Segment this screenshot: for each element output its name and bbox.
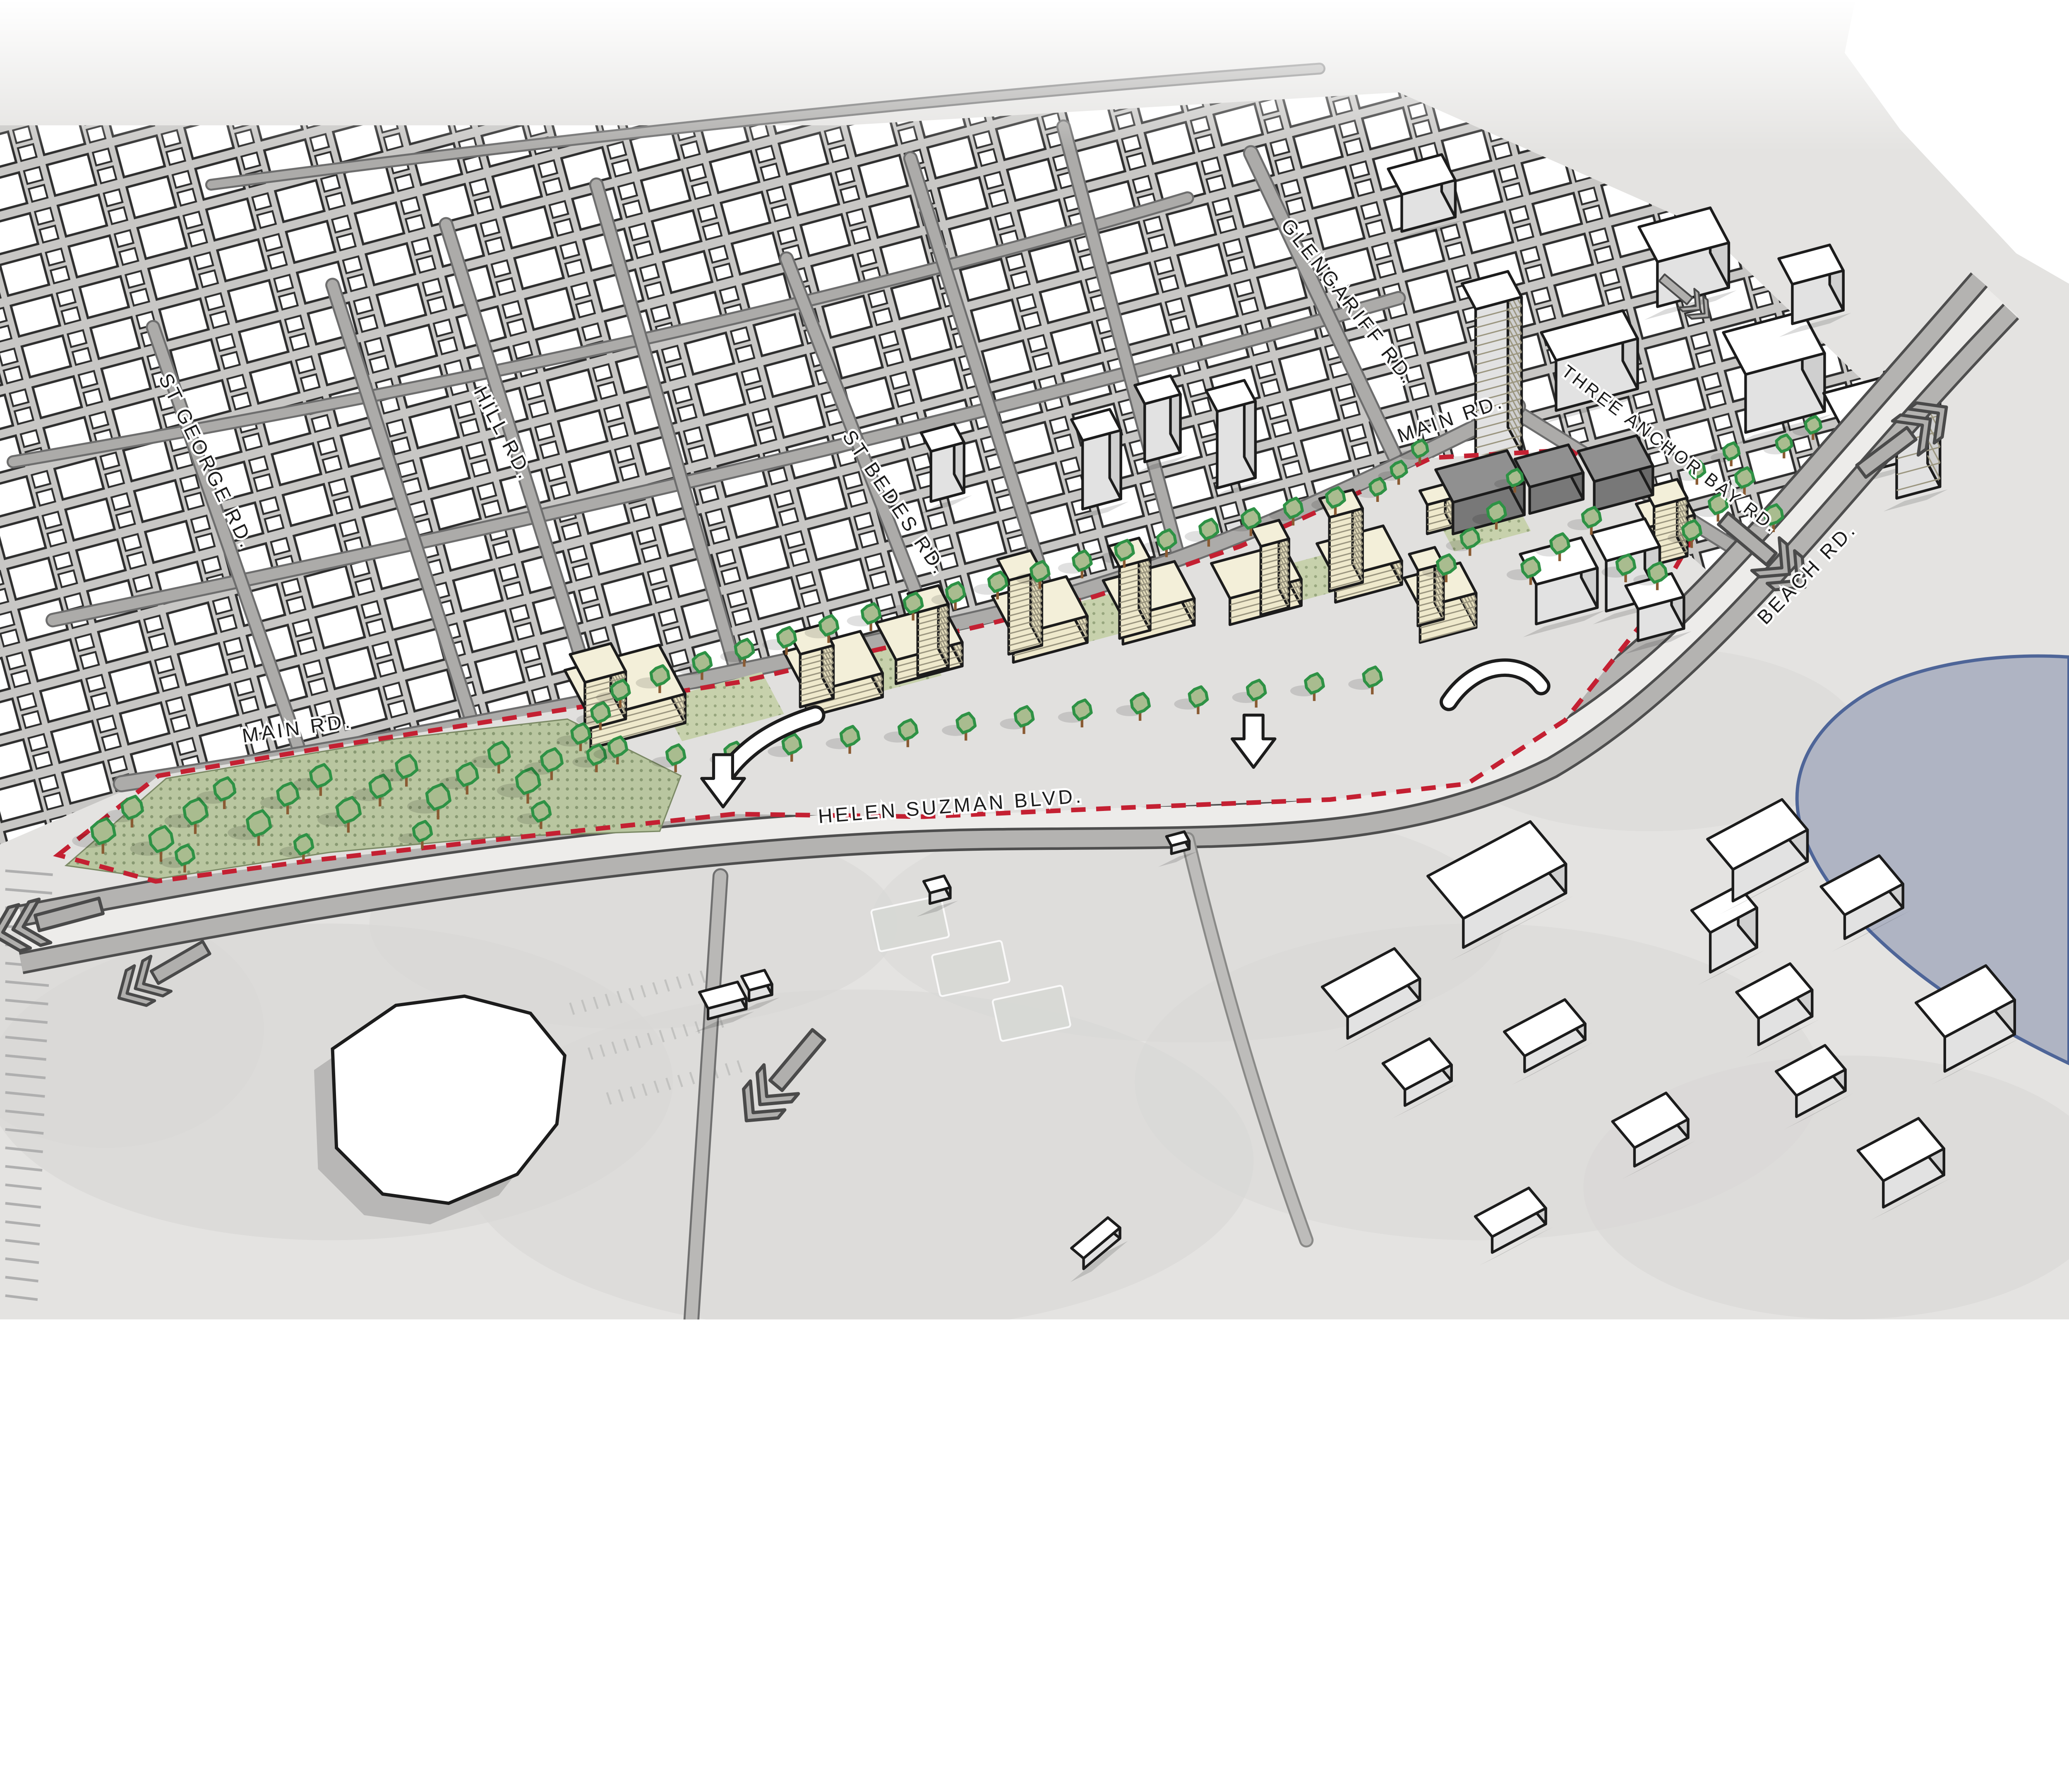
site-plan-canvas: ST GEORGE RD. HILL RD. ST BEDES RD. GLEN…	[0, 0, 2069, 1319]
top-fade	[0, 0, 2069, 152]
page: ST GEORGE RD. HILL RD. ST BEDES RD. GLEN…	[0, 0, 2069, 1319]
